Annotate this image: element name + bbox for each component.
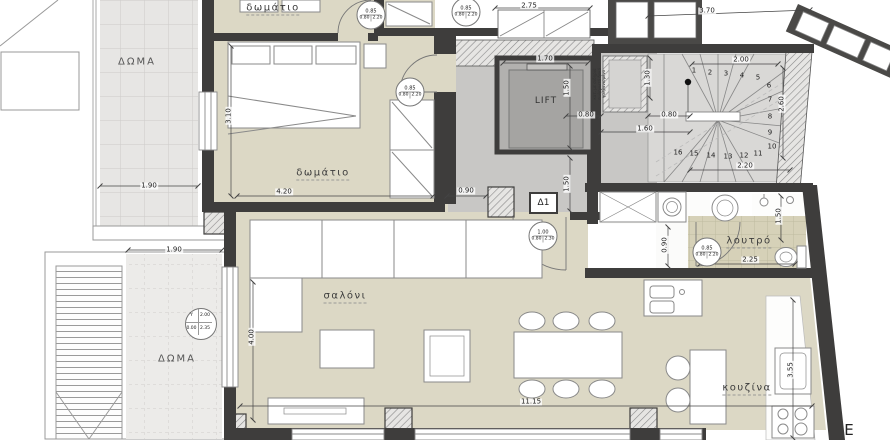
dining-table [514,312,622,398]
dim-label: 1.90 [165,247,183,254]
roof-terrace-label: ΔΩΜΑ [118,57,156,68]
dim-label: 1.70 [536,56,554,63]
stair-number: 8 [768,114,772,121]
door-marker-bath: 0.85 0.802.20 [693,238,722,267]
tv-console [268,398,364,424]
pergola [56,266,122,439]
stair-number: 16 [674,150,683,157]
stair-number: 6 [767,83,771,90]
dim-label: 2.00 [732,57,750,64]
dim-label: 1.90 [140,183,158,190]
dim-label: 2.20 [736,163,754,170]
kitchen-label: κουζίνα [722,383,771,396]
dim-label: 0.80 [577,112,595,119]
door-tag-d1: Δ1 [529,192,558,214]
lift-door [527,64,567,70]
dim-label: 2.75 [520,3,538,10]
kitchen-sink [644,280,702,316]
lift-label: LIFT [535,96,557,106]
stair-number: 15 [690,151,699,158]
nightstand [364,44,386,68]
stair-number: 5 [756,75,760,82]
dim-label: 1.50 [776,207,783,225]
dim-label: 1.50 [564,175,571,193]
stair-start-dot [685,79,691,85]
stair-number: 11 [754,151,763,158]
floor-plan: ΔΩΜΑ ΔΩΜΑ δωμάτιο δωμάτιο σαλόνι κουζίνα… [0,0,890,440]
stair-number: 2 [708,70,712,77]
column [488,187,514,217]
stair-number: 4 [740,73,744,80]
dim-label: 4.00 [249,328,256,346]
bedroom-label: δωμάτιο [296,168,349,181]
dim-label: 3.10 [226,107,233,125]
dim-label: 0.80 [660,112,678,119]
dim-label: 3.55 [788,361,795,379]
bath-sink [712,195,738,221]
dim-label: 0.90 [457,188,475,195]
coffee-table [320,330,374,368]
roof-terrace-label: ΔΩΜΑ [158,354,196,365]
dim-label: 0.90 [662,236,669,254]
stair-number: 7 [768,97,772,104]
washing-machine [658,192,686,222]
stair-number: 13 [724,154,733,161]
armchair [424,330,470,382]
stair-number: 10 [768,144,777,151]
stair-number: 1 [692,68,696,75]
door-marker: 0.85 0.802.20 [357,1,386,30]
wardrobe [390,100,434,198]
stair-number: 3 [724,71,728,78]
bedroom-label: δωμάτιο [246,3,299,16]
dim-label: 1.30 [645,69,652,87]
bed [228,42,360,134]
door-marker-entry: 1.00 0.802.30 [529,222,558,251]
dim-label: 1.50 [564,79,571,97]
window-marker: Y 2.00 0.00 2.35 [185,308,217,340]
bathroom-label: λουτρό [726,236,771,249]
stair-number: 12 [740,153,749,160]
dim-label: 2.60 [779,95,786,113]
door-marker: 0.85 0.802.20 [396,78,425,107]
closet [386,2,432,26]
dim-label: 11.15 [520,399,542,406]
stair-number: 14 [707,153,716,160]
construction-note: κατ. με σιδηριά σωληνωτό δοκό γαλβανισμέ… [593,58,607,110]
stair-number: 9 [768,130,772,137]
living-room-label: σαλόνι [324,291,367,304]
east-mark: E [844,421,853,439]
dim-label: 1.60 [636,126,654,133]
dim-label: 4.20 [275,189,293,196]
toilet [775,246,806,268]
dim-label: 2.25 [741,257,759,264]
bath-closet [600,192,656,222]
dim-label: 3.70 [698,8,716,15]
